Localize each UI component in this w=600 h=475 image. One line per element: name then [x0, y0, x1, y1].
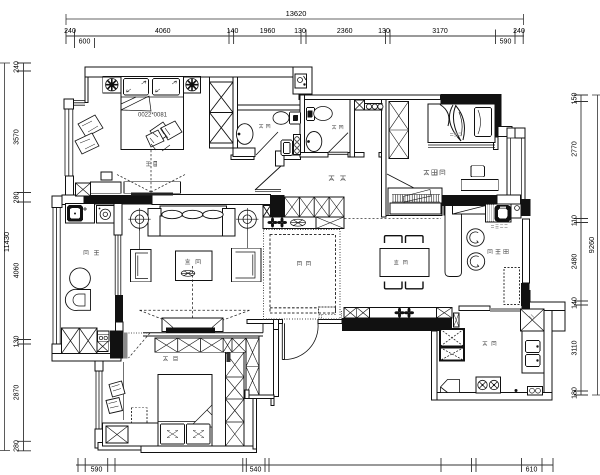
- svg-text:4060: 4060: [14, 263, 21, 279]
- svg-text:240: 240: [64, 28, 76, 35]
- svg-text:600: 600: [79, 39, 91, 46]
- svg-text:0022*0081: 0022*0081: [138, 113, 168, 119]
- svg-text:140: 140: [227, 28, 239, 35]
- svg-text:590: 590: [91, 467, 103, 474]
- svg-text:240: 240: [14, 61, 21, 73]
- svg-text:11430: 11430: [2, 232, 11, 252]
- svg-text:540: 540: [250, 467, 262, 474]
- svg-text:130: 130: [294, 28, 306, 35]
- svg-text:1960: 1960: [260, 28, 276, 35]
- svg-text:180: 180: [572, 387, 579, 399]
- svg-text:3110: 3110: [572, 340, 579, 355]
- svg-text:130: 130: [378, 28, 390, 35]
- svg-text:610: 610: [526, 467, 538, 474]
- svg-text:2480: 2480: [572, 254, 579, 270]
- svg-text:140: 140: [572, 297, 579, 309]
- svg-text:2360: 2360: [337, 28, 353, 35]
- svg-text:9260: 9260: [587, 237, 596, 254]
- svg-text:4060: 4060: [155, 28, 171, 35]
- svg-text:590: 590: [500, 39, 512, 46]
- svg-text:150: 150: [572, 93, 579, 105]
- svg-text:280: 280: [14, 192, 21, 204]
- svg-text:3570: 3570: [14, 129, 21, 145]
- svg-text:13620: 13620: [286, 9, 307, 18]
- svg-text:280: 280: [14, 440, 21, 452]
- svg-text:240: 240: [513, 28, 525, 35]
- svg-text:110: 110: [572, 215, 579, 226]
- svg-text:3170: 3170: [432, 28, 448, 35]
- svg-text:2870: 2870: [14, 385, 21, 401]
- svg-text:2770: 2770: [572, 141, 579, 157]
- svg-text:130: 130: [14, 336, 21, 348]
